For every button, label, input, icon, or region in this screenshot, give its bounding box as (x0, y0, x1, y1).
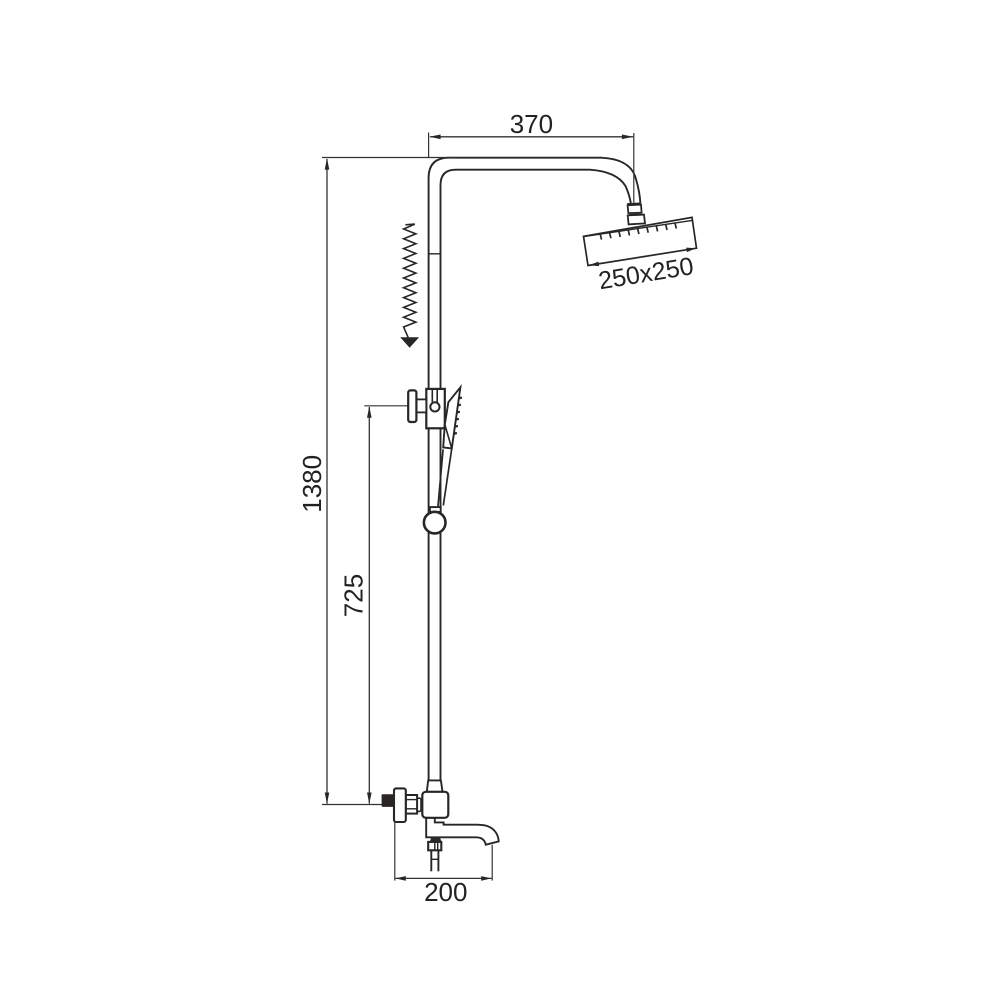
svg-text:200: 200 (424, 877, 467, 907)
svg-text:370: 370 (510, 109, 553, 139)
svg-text:725: 725 (339, 574, 369, 617)
svg-text:1380: 1380 (297, 455, 327, 513)
